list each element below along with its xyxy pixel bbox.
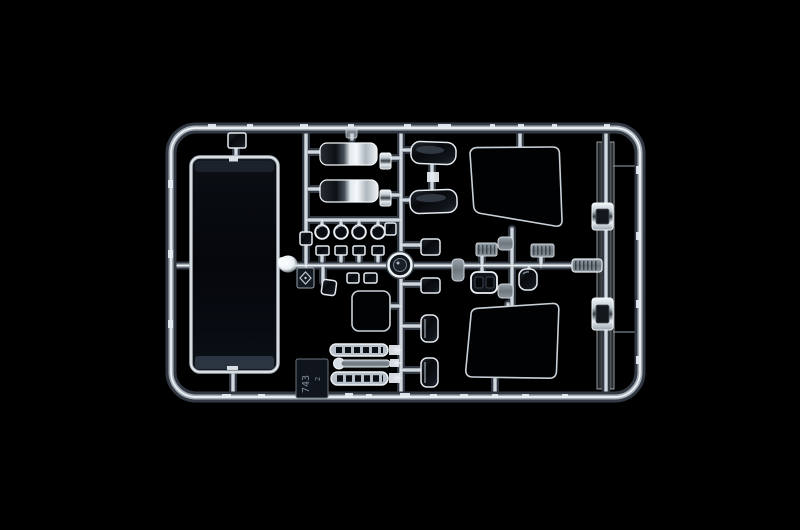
tall-gray-part	[452, 259, 464, 281]
wiper-gate-pad	[389, 345, 400, 355]
small-clear-window	[352, 291, 390, 331]
round-lens	[371, 225, 385, 239]
small-dark-part	[321, 279, 337, 296]
rod-gate-pad	[390, 359, 399, 367]
windshield-top-band	[195, 161, 274, 172]
small-chrome-block-2	[380, 190, 391, 206]
square-lens	[353, 246, 365, 255]
small-lens-b	[364, 273, 377, 283]
deflector-joint-pad	[427, 172, 439, 182]
number-tag: 743 2	[296, 359, 328, 398]
side-window-lower	[466, 303, 559, 378]
wiper-arm-rod	[334, 358, 391, 369]
twin-lens-housing	[471, 272, 497, 293]
round-lens	[352, 225, 366, 239]
headlight-lens-chrome-1	[320, 143, 377, 165]
wind-deflector-2	[410, 189, 458, 214]
round-lens	[334, 225, 348, 239]
logo-tag	[297, 268, 314, 288]
bracket-2	[421, 278, 440, 293]
round-lens	[315, 225, 329, 239]
wiper-blade-2	[331, 372, 388, 385]
square-lens	[316, 246, 329, 255]
top-nub-part	[346, 128, 357, 138]
headlight-lens-chrome-2	[320, 180, 378, 202]
grille-part-1	[476, 243, 497, 256]
small-chrome-block-1	[380, 153, 391, 169]
lower-dark-part-2	[421, 358, 438, 387]
wiper-blade-1	[330, 344, 388, 356]
small-block-right	[385, 223, 396, 235]
grille-part-2	[531, 244, 554, 257]
rounded-gray-part	[498, 237, 513, 250]
dark-lamp-housing	[519, 269, 537, 290]
photo-stage: 743 2	[0, 0, 800, 530]
wiper-gate-pad	[389, 373, 400, 383]
sprue-photo: 743 2	[0, 0, 800, 530]
ring-part	[387, 252, 414, 279]
top-clip	[228, 133, 246, 148]
wind-deflector-1	[411, 141, 457, 165]
right-chrome-part-2	[592, 298, 613, 330]
square-lens	[372, 246, 384, 255]
windshield-pane	[191, 157, 278, 372]
small-lens-a	[347, 273, 359, 283]
bracket-1	[421, 239, 440, 255]
tag-number-primary: 743	[301, 375, 312, 393]
right-chrome-part-1	[592, 203, 613, 230]
square-lens	[335, 246, 347, 255]
tag-number-secondary: 2	[314, 377, 322, 381]
small-rounded-gray	[498, 284, 513, 298]
small-block-left	[300, 232, 312, 245]
side-window-upper	[470, 147, 562, 226]
ridged-connector	[572, 259, 602, 272]
lower-dark-part-1	[421, 315, 438, 342]
